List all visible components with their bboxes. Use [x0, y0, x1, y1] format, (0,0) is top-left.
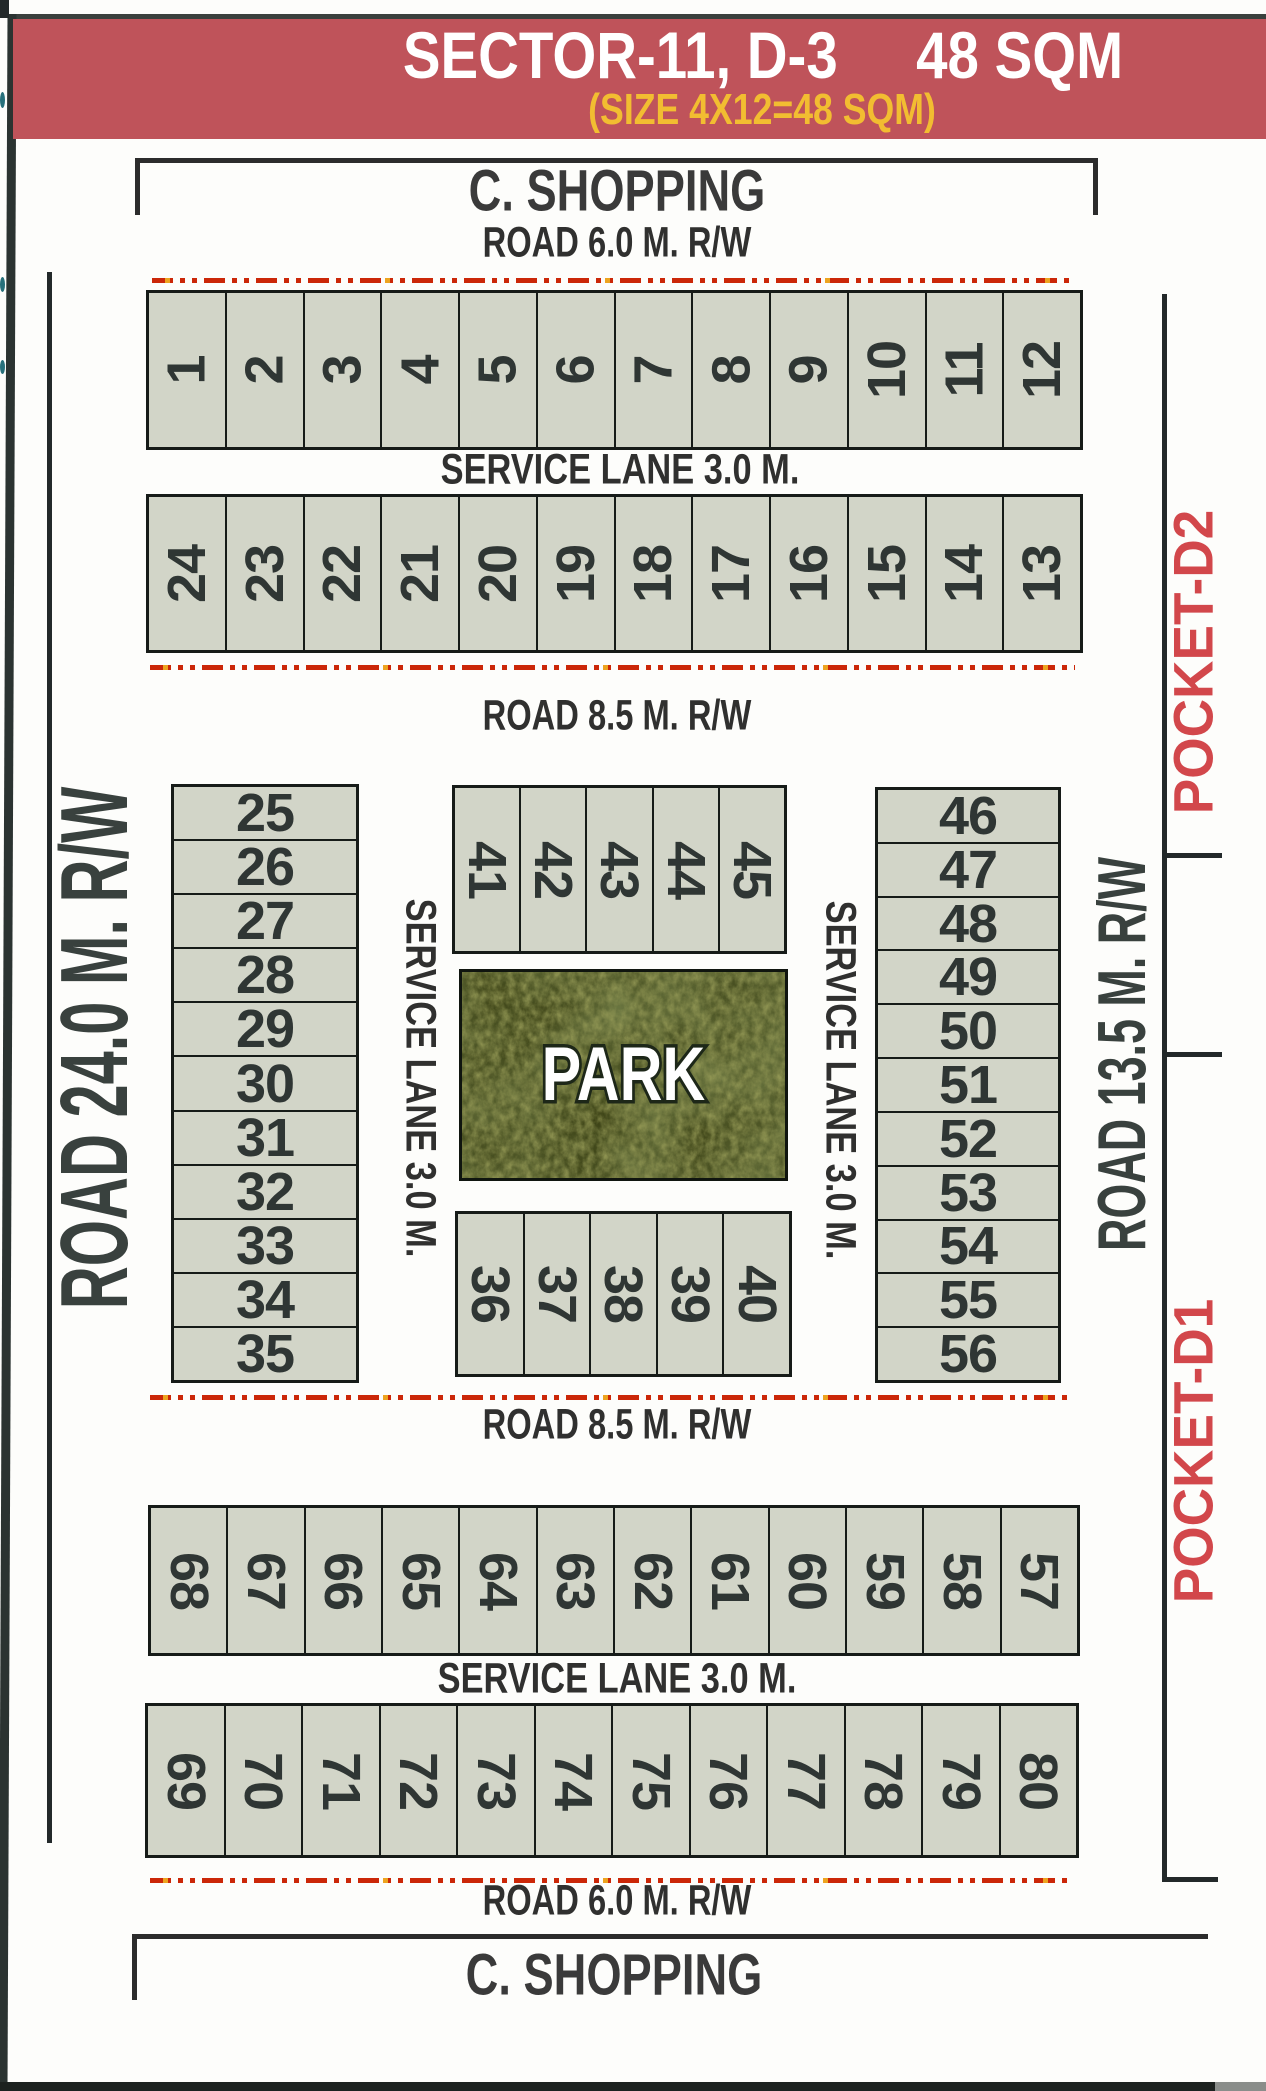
svg-text:PARK: PARK — [542, 1032, 706, 1117]
